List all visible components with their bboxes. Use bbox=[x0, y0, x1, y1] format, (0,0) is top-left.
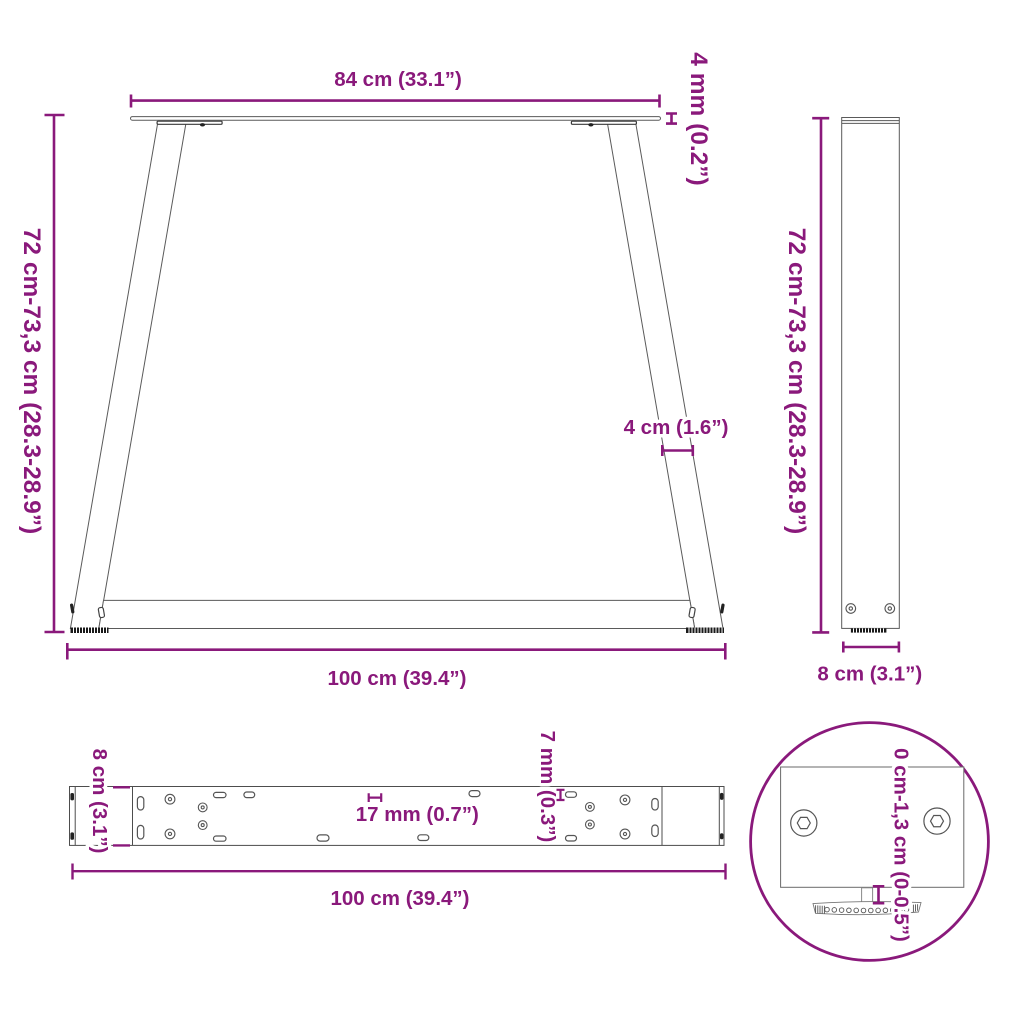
svg-text:72 cm-73,3 cm (28.3-28.9”): 72 cm-73,3 cm (28.3-28.9”) bbox=[18, 228, 45, 534]
svg-text:100 cm (39.4”): 100 cm (39.4”) bbox=[327, 667, 466, 690]
svg-text:100 cm (39.4”): 100 cm (39.4”) bbox=[330, 887, 469, 910]
svg-text:0 cm-1,3 cm (0-0.5”): 0 cm-1,3 cm (0-0.5”) bbox=[890, 748, 913, 942]
svg-text:72 cm-73,3 cm (28.3-28.9”): 72 cm-73,3 cm (28.3-28.9”) bbox=[783, 228, 810, 534]
svg-text:4 cm (1.6”): 4 cm (1.6”) bbox=[624, 416, 729, 439]
svg-text:4 mm (0.2”): 4 mm (0.2”) bbox=[685, 52, 712, 185]
svg-text:8 cm (3.1”): 8 cm (3.1”) bbox=[88, 749, 111, 854]
svg-text:17 mm (0.7”): 17 mm (0.7”) bbox=[356, 803, 479, 826]
svg-text:84 cm (33.1”): 84 cm (33.1”) bbox=[334, 68, 462, 91]
svg-text:7 mm (0.3”): 7 mm (0.3”) bbox=[536, 731, 559, 843]
svg-text:8 cm (3.1”): 8 cm (3.1”) bbox=[817, 663, 922, 686]
